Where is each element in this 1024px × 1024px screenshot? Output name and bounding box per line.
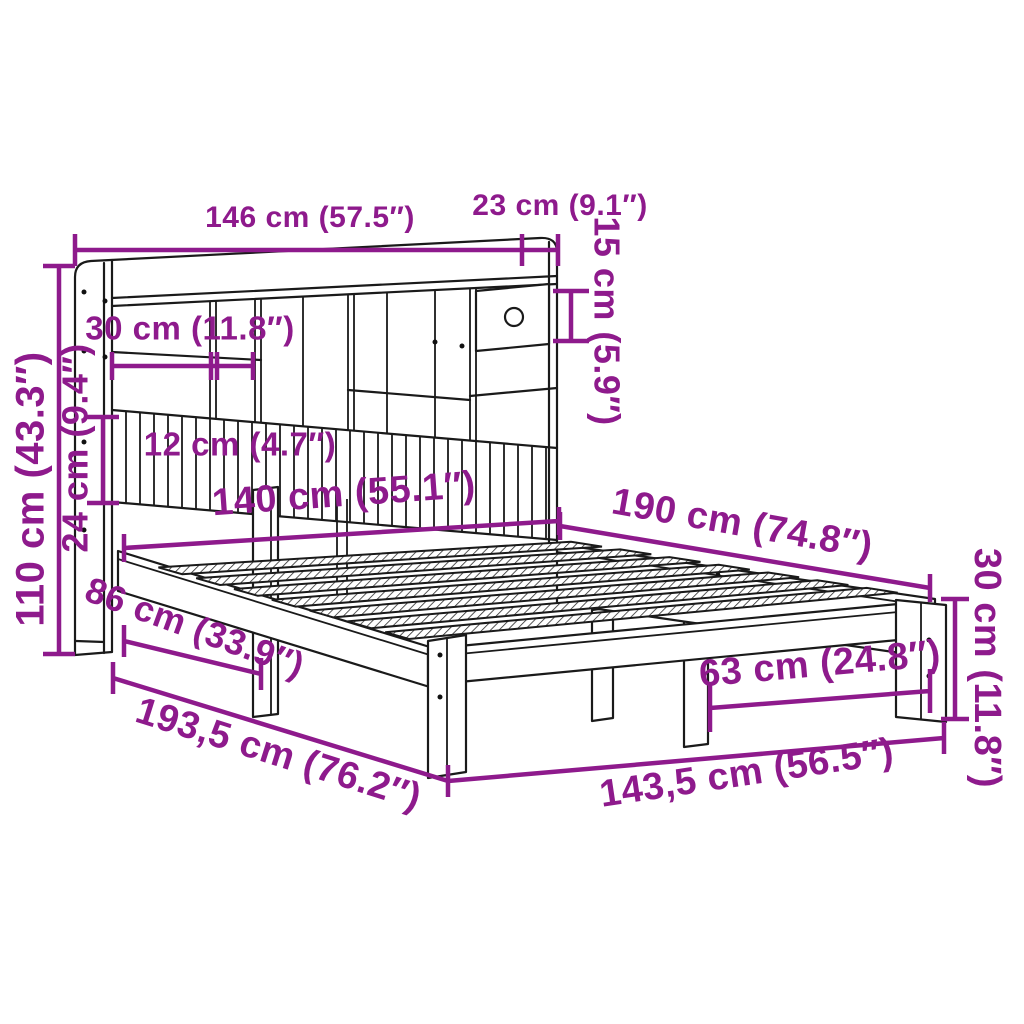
dim-30-frame-height: 30 cm (11.8″)	[941, 548, 1008, 788]
dim-15-label: 15 cm (5.9″)	[586, 216, 627, 425]
dim-15-drawer-height: 15 cm (5.9″)	[553, 216, 627, 425]
bed-dimension-drawing: 146 cm (57.5″) 23 cm (9.1″) 15 cm (5.9″)…	[0, 0, 1024, 1024]
dim-110-label: 110 cm (43.3″)	[9, 351, 53, 626]
dim-30-shelf-label: 30 cm (11.8″)	[85, 310, 294, 347]
dim-12-label: 12 cm (4.7″)	[144, 426, 336, 463]
dim-193-total-length: 193,5 cm (76.2″)	[113, 662, 448, 819]
dim-30-frame-label: 30 cm (11.8″)	[966, 548, 1008, 788]
dimension-diagram: 146 cm (57.5″) 23 cm (9.1″) 15 cm (5.9″)…	[0, 0, 1024, 1024]
drawer-knob-icon	[505, 308, 523, 326]
dim-146-label: 146 cm (57.5″)	[205, 201, 415, 234]
dim-15-line	[553, 291, 589, 341]
dim-12-cubby: 12 cm (4.7″)	[144, 426, 336, 463]
dim-143-label: 143,5 cm (56.5″)	[597, 730, 897, 815]
dim-24-label: 24 cm (9.4″)	[55, 343, 96, 552]
